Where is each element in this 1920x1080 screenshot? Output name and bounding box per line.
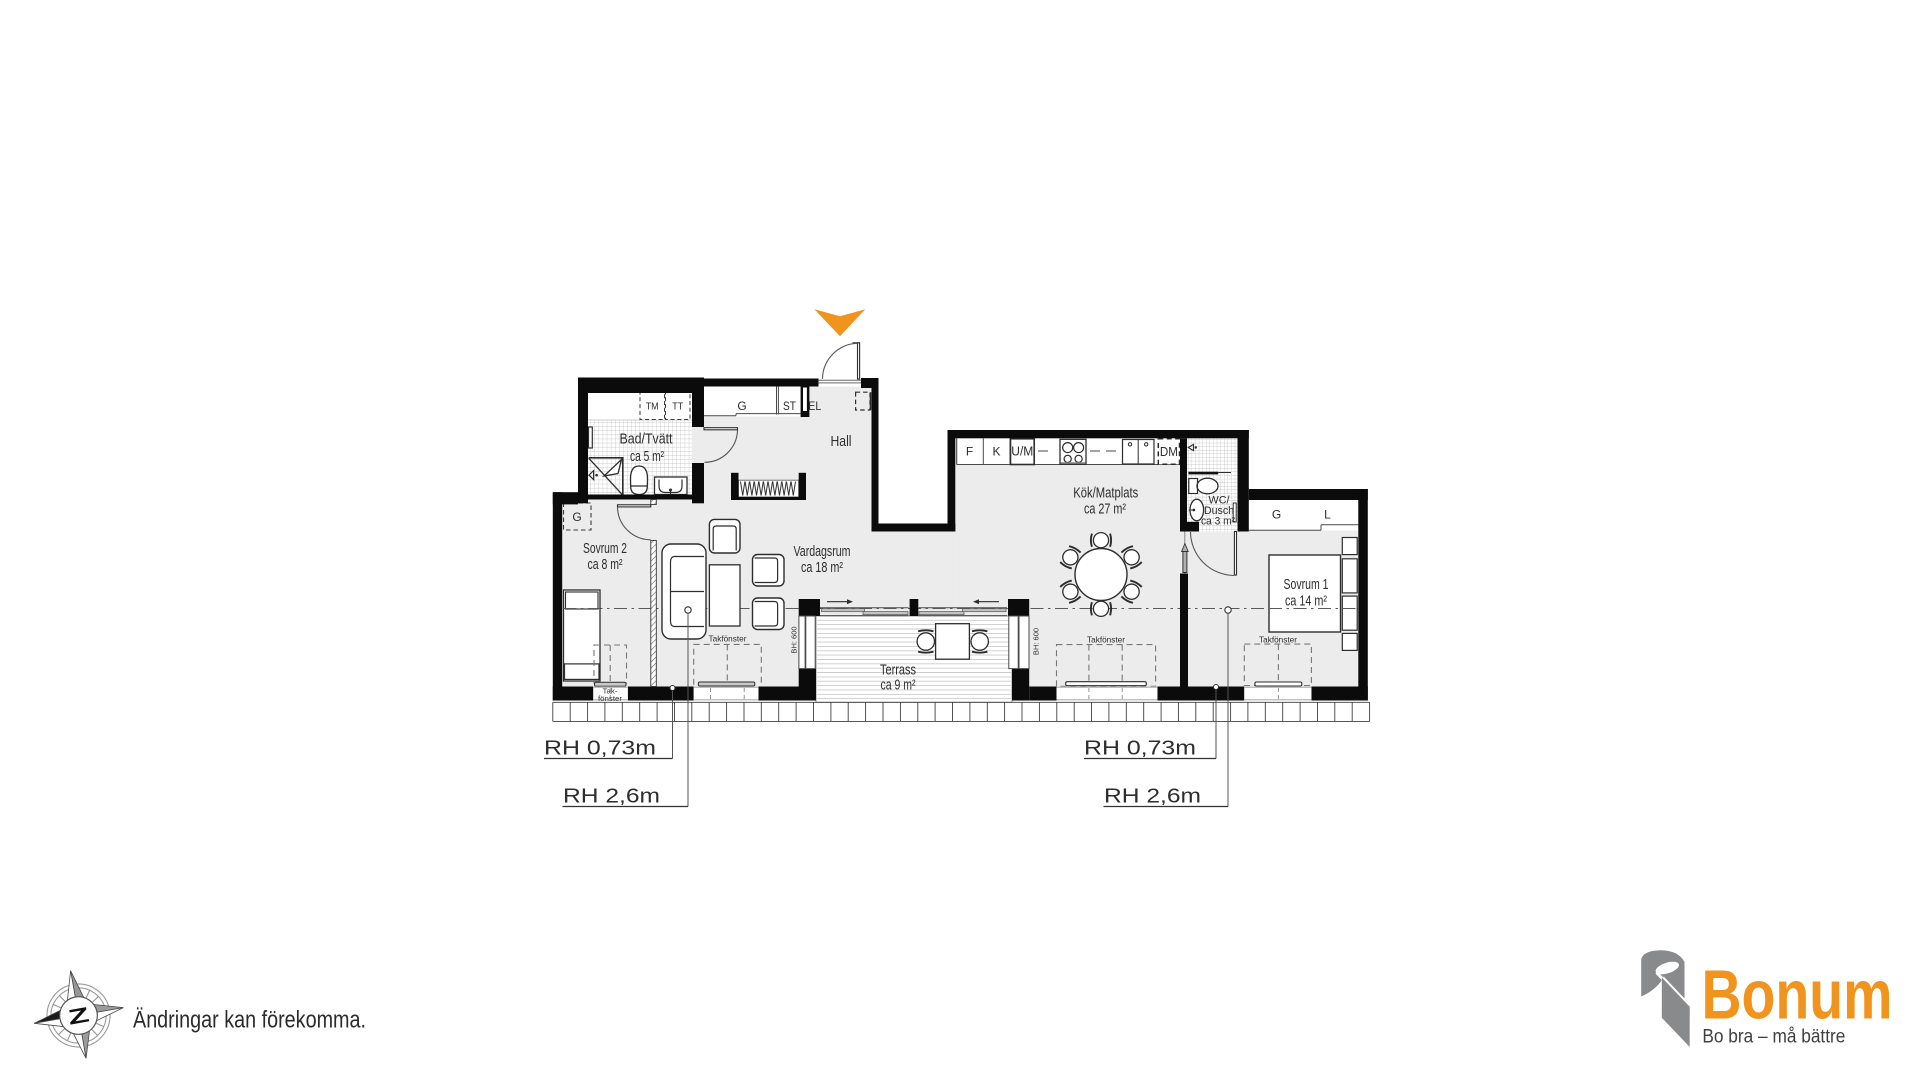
svg-text:ca 9 m²: ca 9 m² <box>881 678 916 694</box>
svg-text:ca 27 m²: ca 27 m² <box>1084 502 1126 518</box>
svg-text:Takfönster: Takfönster <box>1259 635 1297 645</box>
svg-text:RH 0,73m: RH 0,73m <box>1084 738 1196 760</box>
svg-text:ca 18 m²: ca 18 m² <box>801 560 843 576</box>
svg-text:U/M: U/M <box>1011 445 1033 459</box>
svg-text:RH 2,6m: RH 2,6m <box>563 786 660 808</box>
svg-text:Takfönster: Takfönster <box>709 634 747 644</box>
svg-text:Takfönster: Takfönster <box>1087 635 1125 645</box>
svg-text:G: G <box>572 510 581 524</box>
svg-text:TT: TT <box>672 402 683 413</box>
svg-text:Ändringar kan förekomma.: Ändringar kan förekomma. <box>133 1007 366 1034</box>
svg-text:K: K <box>992 445 1000 459</box>
svg-text:DM: DM <box>1160 445 1178 459</box>
svg-text:Bo bra – må bättre: Bo bra – må bättre <box>1702 1027 1845 1048</box>
svg-text:ca 5 m²: ca 5 m² <box>630 449 664 465</box>
svg-text:ca 3 m²: ca 3 m² <box>1201 516 1235 528</box>
svg-text:BH: 600: BH: 600 <box>790 626 799 653</box>
svg-text:L: L <box>1324 508 1331 522</box>
svg-text:ca 14 m²: ca 14 m² <box>1285 594 1327 610</box>
svg-text:Vardagsrum: Vardagsrum <box>794 544 851 560</box>
svg-text:TM: TM <box>646 402 659 413</box>
svg-text:ca 8 m²: ca 8 m² <box>588 557 623 573</box>
svg-text:Kök/Matplats: Kök/Matplats <box>1073 486 1138 502</box>
svg-text:Terrass: Terrass <box>880 663 916 679</box>
svg-text:RH 2,6m: RH 2,6m <box>1104 786 1201 808</box>
svg-text:BH: 600: BH: 600 <box>1032 628 1041 655</box>
svg-text:Hall: Hall <box>831 433 852 450</box>
svg-text:Sovrum 2: Sovrum 2 <box>583 541 627 557</box>
svg-text:fönster: fönster <box>598 694 623 703</box>
svg-text:Z: Z <box>66 1003 91 1029</box>
svg-text:F: F <box>966 445 973 459</box>
svg-text:Sovrum 1: Sovrum 1 <box>1284 577 1329 593</box>
svg-text:G: G <box>737 399 746 413</box>
svg-text:Bad/Tvätt: Bad/Tvätt <box>620 432 673 448</box>
svg-text:ST: ST <box>783 401 796 413</box>
svg-text:G: G <box>1272 508 1281 522</box>
svg-text:RH 0,73m: RH 0,73m <box>544 738 656 760</box>
svg-text:EL: EL <box>808 399 821 413</box>
svg-text:Bonum: Bonum <box>1702 955 1893 1033</box>
